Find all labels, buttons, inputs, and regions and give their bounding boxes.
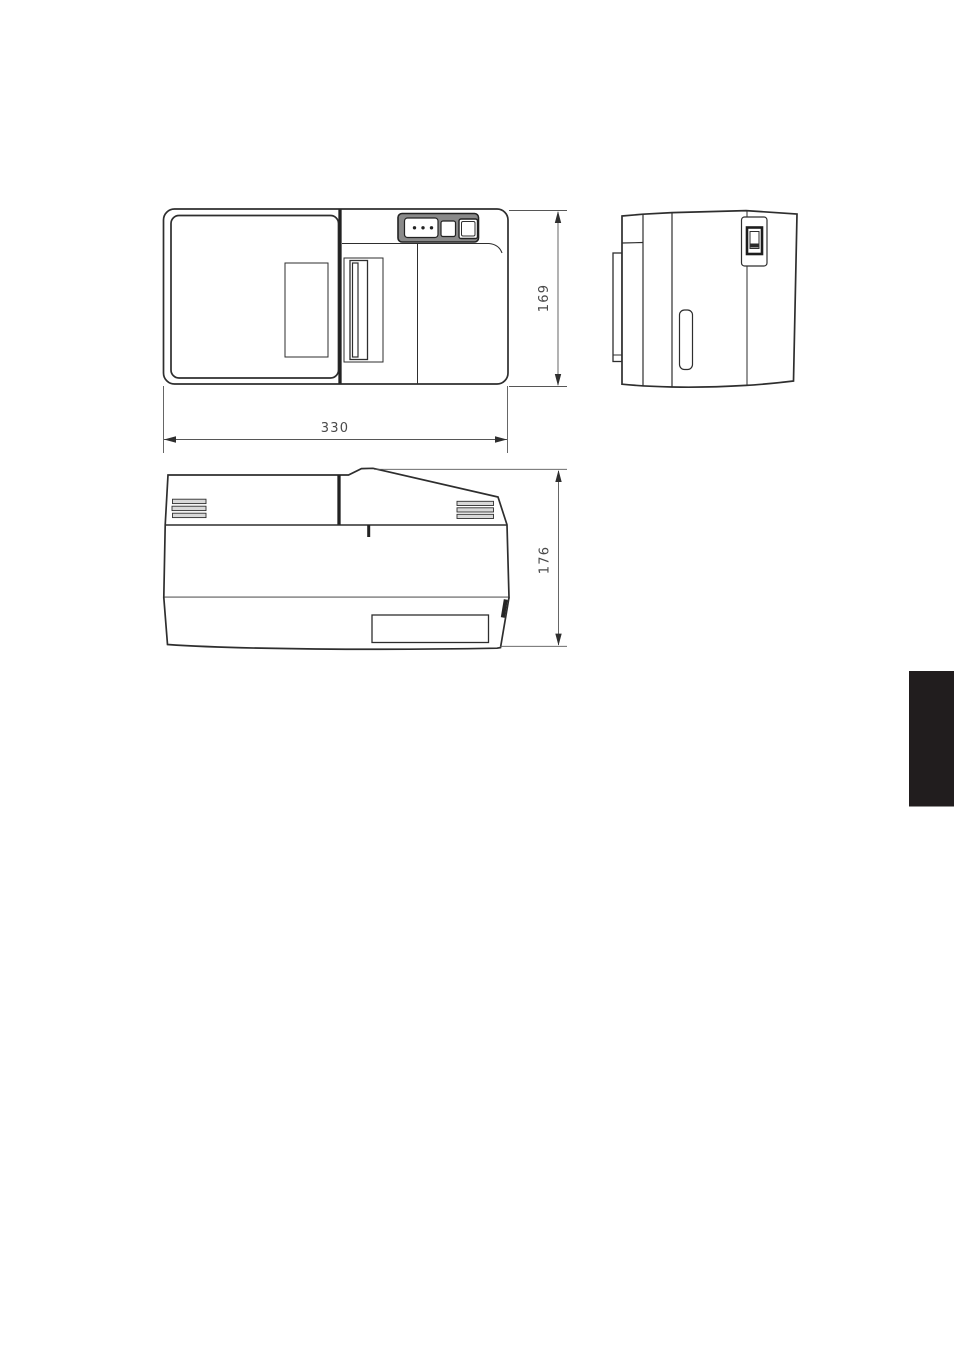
front-face-step-line (623, 243, 644, 244)
right-vent-slots (457, 501, 494, 518)
front-view-base-outline (164, 598, 509, 650)
front-view (164, 468, 509, 649)
paper-support (613, 253, 622, 362)
depth-dimension-label: 169 (537, 284, 552, 312)
front-view-upper-outline (164, 468, 509, 597)
arrow-down-icon (555, 374, 561, 386)
power-switch-icon (747, 228, 762, 255)
side-view (613, 211, 797, 388)
arrow-left-icon (164, 436, 176, 442)
top-view-depth-dimension: 169 (509, 211, 567, 387)
side-view-body-outline (622, 211, 797, 388)
arrow-up-icon (555, 211, 561, 223)
panel-button-1 (441, 221, 456, 237)
dimension-drawing: 169 330 (0, 0, 954, 1355)
page-edge-tab (909, 671, 954, 807)
top-view (164, 209, 509, 384)
top-view-width-dimension: 330 (164, 386, 508, 453)
manual-page: 169 330 (0, 0, 954, 1355)
left-vent-slots (172, 499, 206, 517)
width-dimension-label: 330 (321, 421, 349, 436)
arrow-down-icon (555, 634, 561, 646)
arrow-right-icon (495, 436, 507, 442)
arrow-up-icon (555, 470, 561, 482)
height-dimension-label: 176 (538, 546, 553, 574)
